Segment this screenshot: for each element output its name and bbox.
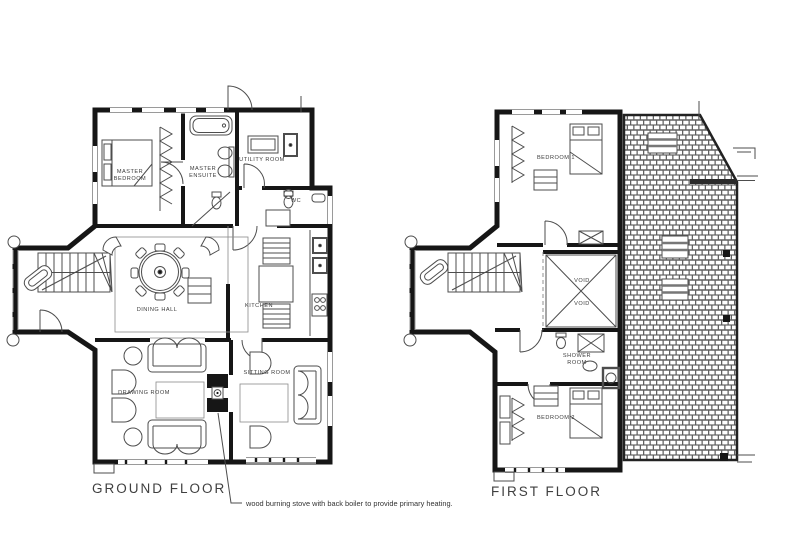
bay-post bbox=[404, 334, 416, 346]
bay-post bbox=[7, 334, 19, 346]
bed-2 bbox=[570, 388, 602, 438]
floorplan-drawing: MASTER BEDROOM MASTER ENSUITE UTILITY RO… bbox=[0, 0, 800, 535]
wood-burning-stove bbox=[207, 374, 228, 412]
rooflight bbox=[648, 133, 677, 153]
staircase bbox=[22, 253, 112, 293]
staircase-first bbox=[418, 253, 522, 292]
label-void-upper: VOID bbox=[574, 278, 590, 284]
label-sitting-room: SITTING ROOM bbox=[243, 370, 290, 376]
label-dining-hall: DINING HALL bbox=[137, 307, 178, 313]
bay-post bbox=[405, 236, 417, 248]
drawing-rug bbox=[156, 382, 204, 418]
label-master-ensuite-1: MASTER bbox=[190, 166, 216, 172]
cupboard-1 bbox=[579, 231, 603, 244]
label-bedroom-2: BEDROOM 2 bbox=[537, 415, 575, 421]
ground-floor-plan: MASTER BEDROOM MASTER ENSUITE UTILITY RO… bbox=[7, 86, 453, 508]
utility-fixtures bbox=[248, 134, 297, 156]
wardrobe-rail bbox=[512, 398, 524, 441]
label-master-bedroom-2: BEDROOM bbox=[114, 176, 146, 182]
label-master-bedroom-1: MASTER bbox=[117, 169, 143, 175]
roof-area bbox=[624, 101, 758, 462]
label-shower-room-1: SHOWER bbox=[563, 353, 591, 359]
void-cross bbox=[546, 255, 616, 327]
door-step bbox=[94, 464, 114, 473]
label-kitchen: KITCHEN bbox=[245, 303, 273, 309]
ground-floor-title: GROUND FLOOR bbox=[92, 481, 226, 496]
label-void-lower: VOID bbox=[574, 301, 590, 307]
rooflight bbox=[662, 236, 688, 258]
dining-chest bbox=[188, 278, 211, 303]
sitting-rug bbox=[240, 384, 288, 422]
wardrobe-rail bbox=[160, 127, 172, 211]
floorplan-page: MASTER BEDROOM MASTER ENSUITE UTILITY RO… bbox=[0, 0, 800, 535]
label-drawing-room: DRAWING ROOM bbox=[118, 390, 170, 396]
drawing-sofas bbox=[112, 338, 206, 454]
label-bedroom-1: BEDROOM 1 bbox=[537, 155, 575, 161]
bay-post bbox=[8, 236, 20, 248]
first-floor-title: FIRST FLOOR bbox=[491, 484, 602, 499]
first-floor-plan: BEDROOM 1 VOID VOID SHOWER ROOM BEDROOM … bbox=[404, 101, 758, 499]
wardrobe-rail bbox=[512, 126, 524, 183]
label-shower-room-2: ROOM bbox=[567, 360, 586, 366]
dining-table bbox=[131, 244, 189, 300]
bed-1 bbox=[570, 124, 602, 174]
label-master-ensuite-2: ENSUITE bbox=[189, 173, 217, 179]
label-utility-room: UTILITY ROOM bbox=[239, 157, 285, 163]
rooflight bbox=[662, 279, 688, 300]
roof-plate bbox=[690, 179, 737, 184]
kitchen-appliances bbox=[310, 230, 327, 336]
label-wc: WC bbox=[291, 198, 301, 204]
shower-fixtures bbox=[556, 333, 619, 388]
stove-note-text: wood burning stove with back boiler to p… bbox=[245, 499, 453, 508]
sitting-sofa bbox=[250, 352, 321, 448]
dresser-1 bbox=[534, 170, 557, 190]
ground-doors bbox=[40, 86, 277, 360]
